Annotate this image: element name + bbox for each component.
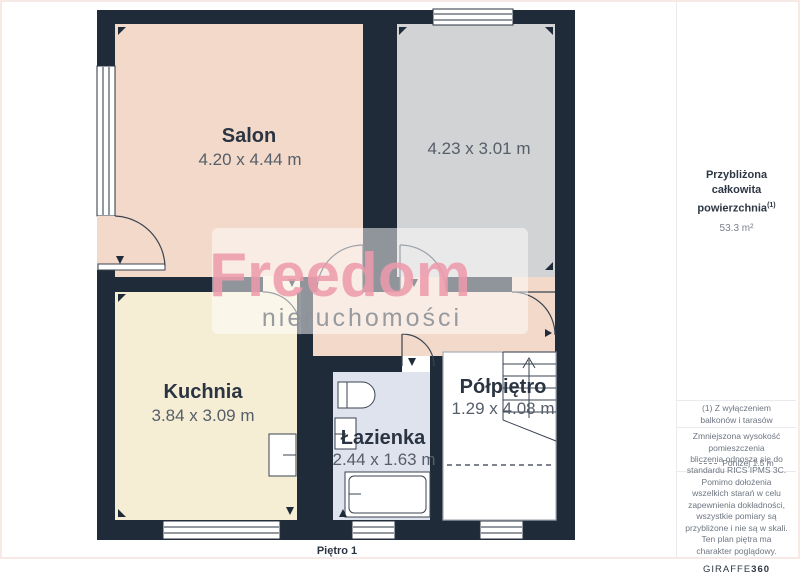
window-kitchen <box>163 521 280 539</box>
card-bottom-border <box>2 558 798 559</box>
dims-salon: 4.20 x 4.44 m <box>198 150 301 169</box>
wall-kitchen-bath <box>297 356 333 520</box>
balcony-door-leaf <box>98 264 165 270</box>
label-polpietro: Półpiętro <box>460 376 547 398</box>
wall-bath-right <box>430 356 443 520</box>
dims-lazienka: 2.44 x 1.63 m <box>332 450 435 469</box>
total-area-section: Przybliżona całkowita powierzchnia(1) 53… <box>677 2 796 401</box>
watermark-brand: Freedom <box>209 241 471 310</box>
window-polpietro <box>480 521 523 539</box>
watermark-sub: nieruchomości <box>262 304 462 332</box>
disclaimer-text: bliczenia odnoszą się do standardu RICS … <box>684 454 789 558</box>
total-area-label-text: Przybliżona całkowita powierzchnia <box>697 169 767 215</box>
wall-bath-top <box>333 356 402 372</box>
disclaimer-section: bliczenia odnoszą się do standardu RICS … <box>677 472 796 558</box>
toilet <box>338 382 375 408</box>
total-area-label: Przybliżona całkowita powierzchnia(1) <box>677 168 796 217</box>
label-kuchnia: Kuchnia <box>164 381 244 403</box>
floorplan-page: { "floor_label": "Piętro 1", "watermark"… <box>0 0 800 566</box>
watermark: Freedom nieruchomości <box>209 228 528 334</box>
total-area-superscript: (1) <box>767 202 776 209</box>
label-salon: Salon <box>222 125 276 147</box>
footnote-text: (1) Z wyłączeniem balkonów i tarasów <box>684 402 789 426</box>
total-area-value: 53.3 m² <box>720 223 754 234</box>
dims-gray-room: 4.23 x 3.01 m <box>427 139 530 158</box>
floor-label: Piętro 1 <box>317 545 357 557</box>
giraffe360-logo: GIRAFFE360 <box>703 564 770 576</box>
balcony-doorway-gap <box>97 216 115 270</box>
dims-polpietro: 1.29 x 4.08 m <box>451 399 554 418</box>
footnote-section: (1) Z wyłączeniem balkonów i tarasów <box>677 401 796 428</box>
reduced-height-label: Zmniejszona wysokość pomieszczenia <box>684 430 789 454</box>
wall-right <box>555 10 575 540</box>
label-lazienka: Łazienka <box>341 427 426 449</box>
window-left <box>97 66 115 216</box>
info-sidebar: Przybliżona całkowita powierzchnia(1) 53… <box>676 2 796 558</box>
dims-kuchnia: 3.84 x 3.09 m <box>151 406 254 425</box>
window-top <box>433 9 513 25</box>
window-bath <box>352 521 395 539</box>
